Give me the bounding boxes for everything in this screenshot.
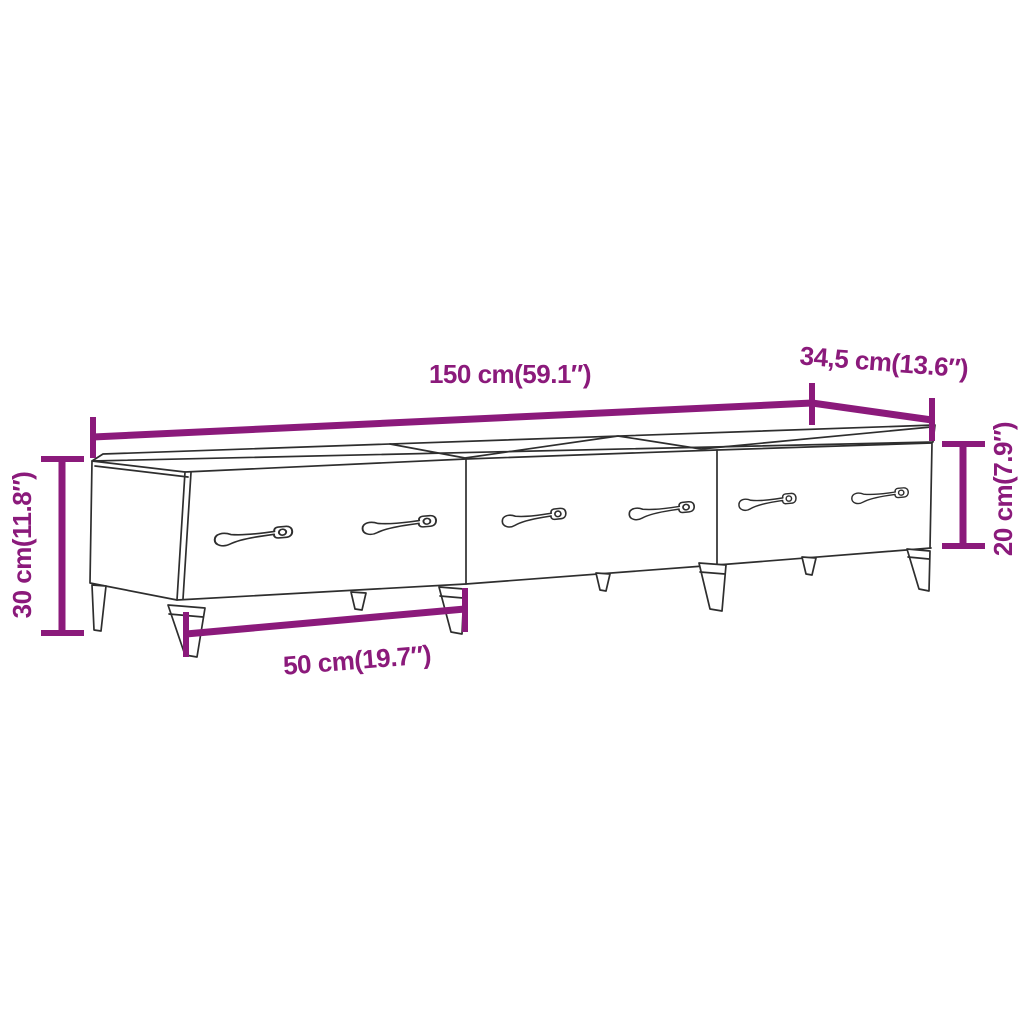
dimension-label-front-height: 20 cm(7.9″) [988,369,1018,609]
dimension-line-width [93,403,812,437]
dimension-label-width: 150 cm(59.1″) [360,359,660,389]
dimension-line-drawer-width [186,609,465,634]
drawer-handle-icon [629,501,695,520]
drawer-handle-icon [214,526,293,547]
drawer-handle-icon [362,515,437,535]
drawer-handle-icon [851,487,909,504]
back-leg [802,557,816,575]
cabinet-right-edge [930,443,932,548]
back-leg [92,585,106,631]
cabinet-bottom-edge [177,548,931,600]
front-leg [699,563,726,611]
dimension-diagram: 150 cm(59.1″) 34,5 cm(13.6″) 30 cm(11.8″… [0,0,1024,1024]
front-leg [907,549,930,591]
back-leg [596,573,610,591]
cabinet-legs [92,549,930,657]
tv-cabinet-line-drawing [0,0,1024,1024]
dimension-label-height: 30 cm(11.8″) [7,415,37,675]
drawer-handle-icon [738,493,796,511]
cabinet-left-side [90,461,185,600]
drawer-handle-icon [502,508,567,528]
top-panel-seams [390,427,931,458]
back-leg [351,592,366,610]
dimension-line-depth [812,403,932,420]
drawer-handles [214,487,909,546]
